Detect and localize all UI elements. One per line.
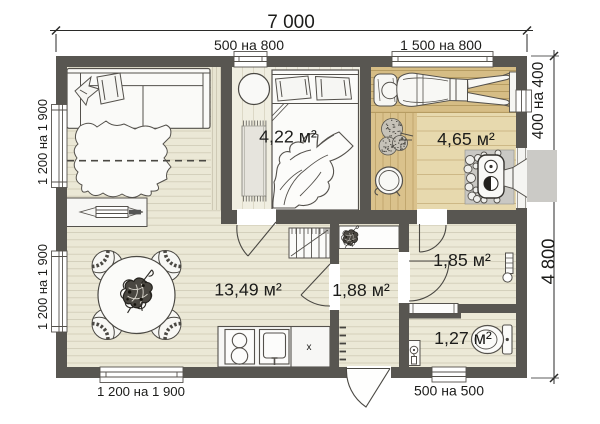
svg-text:4,65 м²: 4,65 м² [437,129,495,149]
svg-text:500 на 800: 500 на 800 [214,37,284,53]
svg-text:7 000: 7 000 [267,12,315,33]
svg-text:1,85 м²: 1,85 м² [433,250,491,270]
svg-text:1,88 м²: 1,88 м² [332,280,390,300]
svg-text:1,27 м²: 1,27 м² [434,328,492,348]
svg-text:x: x [307,342,312,353]
svg-text:400 на 400: 400 на 400 [530,61,547,139]
svg-text:4,22 м²: 4,22 м² [259,127,317,147]
svg-text:1 200 на 1 900: 1 200 на 1 900 [35,99,50,185]
svg-text:1 200 на 1 900: 1 200 на 1 900 [97,384,185,399]
svg-text:500 на 500: 500 на 500 [414,383,484,399]
svg-text:4 800: 4 800 [538,239,559,285]
svg-text:1 200 на 1 900: 1 200 на 1 900 [35,244,50,330]
svg-text:13,49 м²: 13,49 м² [214,280,282,300]
svg-text:1 500 на 800: 1 500 на 800 [400,37,482,53]
